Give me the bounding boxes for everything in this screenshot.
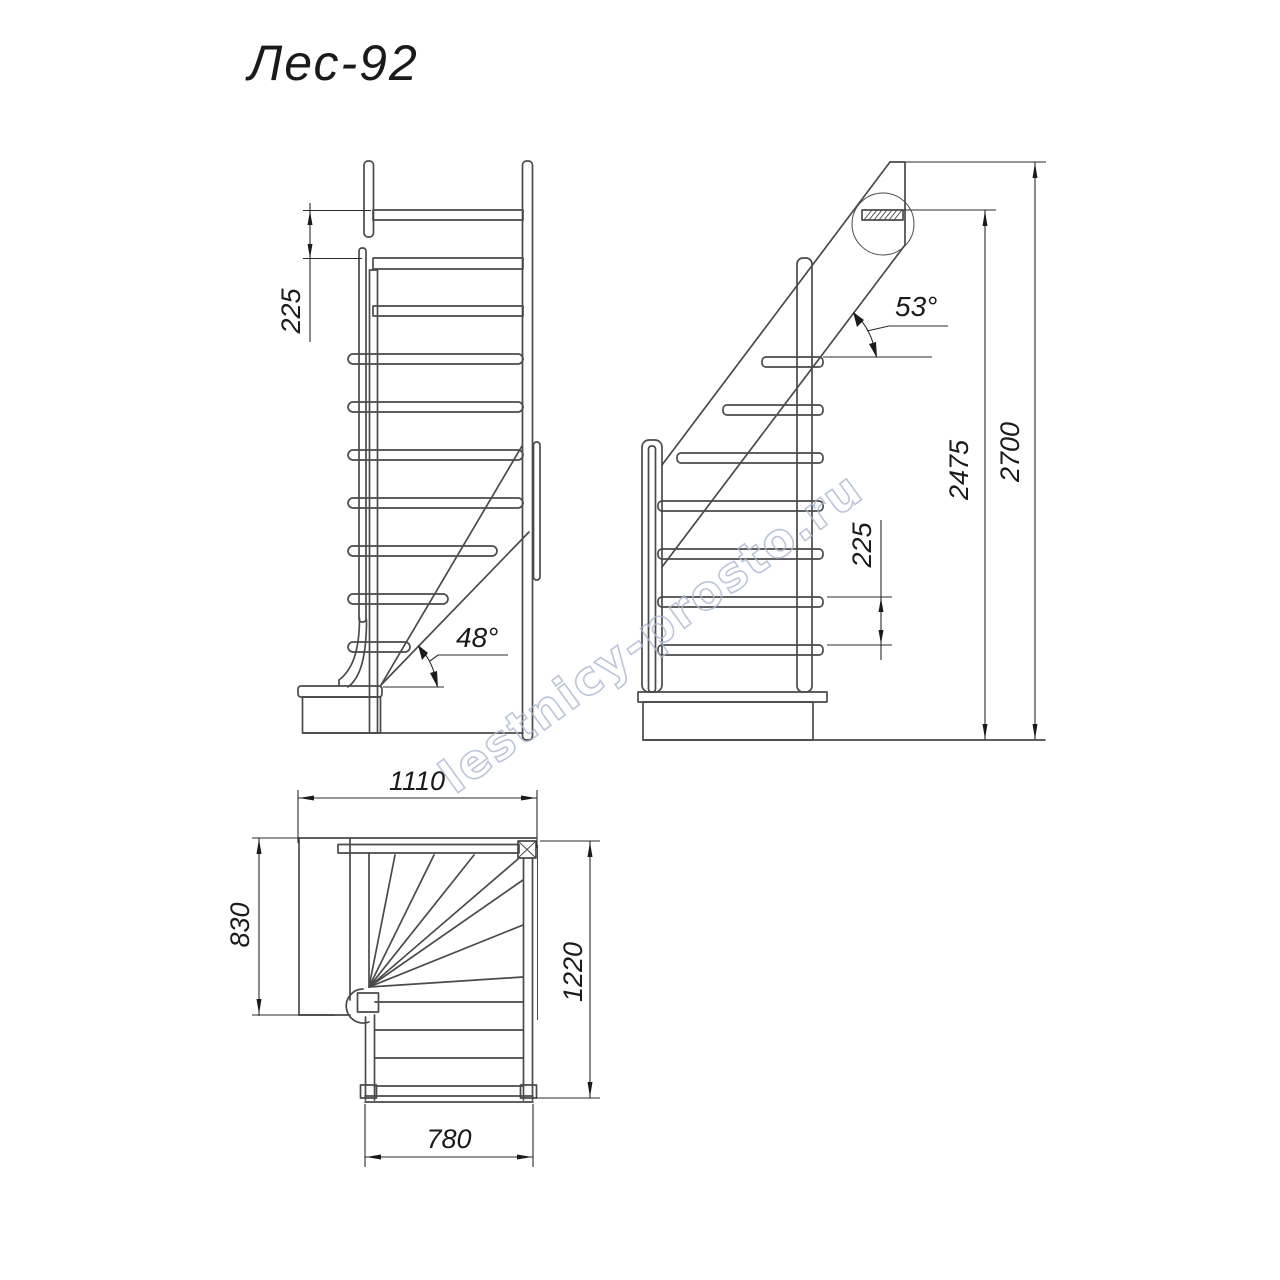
plan-width-bottom-label: 780	[426, 1124, 471, 1154]
side-height-tread-label: 2475	[944, 439, 974, 501]
side-riser-dim-label: 225	[847, 521, 877, 568]
plan-top-newel	[518, 841, 536, 858]
front-stringer-upper-edge	[381, 446, 522, 685]
side-structure	[638, 162, 1045, 740]
front-angle-annotation: 48°	[383, 622, 508, 688]
front-treads	[348, 210, 523, 652]
front-view: 225 48°	[276, 161, 540, 740]
front-stringer-lower-edge	[381, 532, 529, 685]
side-dim-2475: 2475	[903, 210, 996, 740]
staircase-drawing: Лес-92	[0, 0, 1280, 1280]
front-angle-label: 48°	[456, 622, 498, 653]
side-stringer-top-end	[890, 162, 905, 245]
front-right-board	[534, 442, 541, 580]
side-stringer-upper-edge	[662, 162, 890, 465]
plan-dim-depth-left: 830	[225, 838, 335, 1016]
plan-dim-depth-right: 1220	[536, 841, 600, 1098]
side-dim-2700: 2700	[905, 162, 1046, 740]
side-view: 53° 225 2475 2700	[638, 162, 1046, 740]
side-height-total-label: 2700	[995, 422, 1025, 483]
plan-dim-width-bottom: 780	[365, 1104, 533, 1167]
plan-structure	[299, 838, 538, 1102]
hatched-tread-section	[862, 210, 903, 220]
front-left-rail-outer	[370, 270, 378, 733]
front-riser-dim-label: 225	[276, 287, 306, 334]
side-angle-annotation: 53°	[823, 291, 948, 358]
plan-lower-flight	[361, 1002, 537, 1102]
side-angle-label: 53°	[895, 291, 937, 322]
side-dim-riser: 225	[827, 520, 892, 660]
front-curved-stringer-edge2	[348, 620, 367, 687]
front-structure	[298, 161, 540, 740]
plan-view: 1110 830 1220 780	[225, 766, 600, 1167]
front-left-post	[364, 161, 374, 237]
drawing-title: Лес-92	[245, 35, 419, 91]
plan-depth-left-label: 830	[225, 902, 255, 947]
plan-dim-width-top: 1110	[298, 766, 537, 848]
front-dim-riser: 225	[276, 203, 371, 342]
front-left-rail-inner	[359, 248, 366, 622]
plan-top-landing-bar	[338, 845, 519, 854]
side-base-box	[643, 702, 813, 740]
plan-depth-right-label: 1220	[558, 942, 588, 1002]
plan-winder-fan	[369, 853, 523, 987]
front-right-post	[523, 161, 533, 740]
drawing-sheet: Лес-92	[0, 0, 1280, 1280]
side-base-band	[638, 692, 827, 702]
side-center-post	[797, 258, 812, 692]
